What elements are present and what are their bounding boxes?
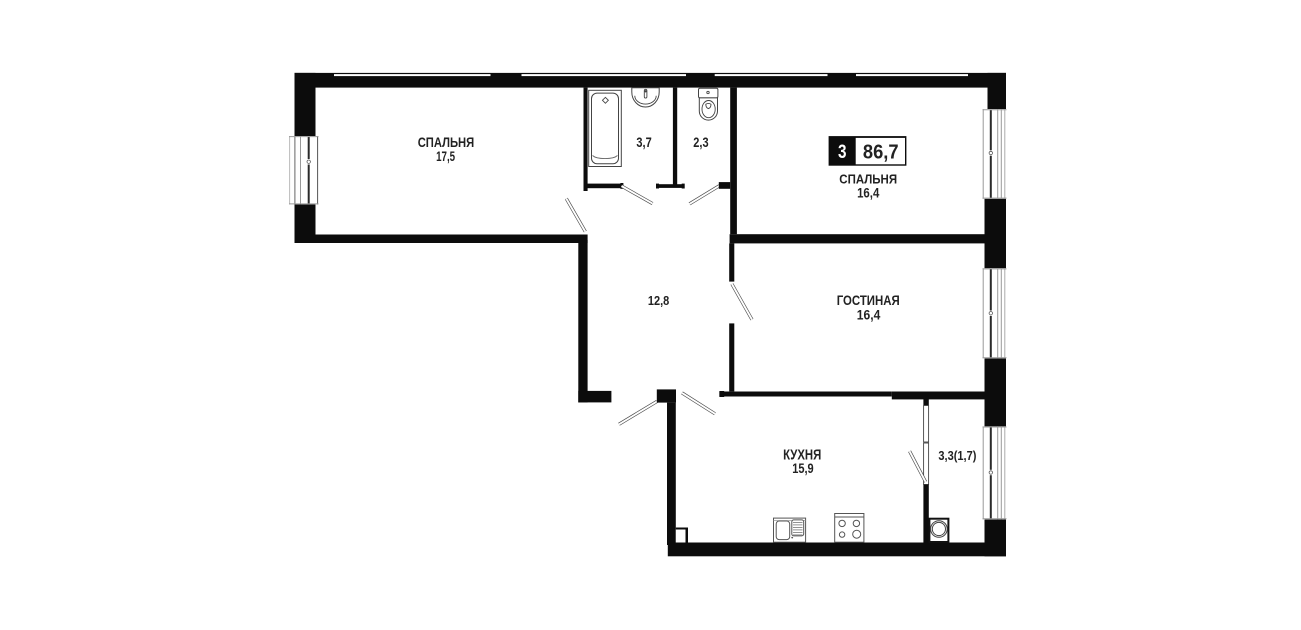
svg-text:СПАЛЬНЯ: СПАЛЬНЯ [839,173,897,187]
svg-text:3,3(1,7): 3,3(1,7) [938,449,976,463]
svg-text:3,7: 3,7 [636,134,651,150]
svg-text:16,4: 16,4 [857,186,880,201]
svg-text:ГОСТИНАЯ: ГОСТИНАЯ [837,293,900,308]
svg-text:3: 3 [838,142,847,163]
svg-text:15,9: 15,9 [792,461,814,476]
svg-text:86,7: 86,7 [863,141,899,163]
svg-text:16,4: 16,4 [857,307,881,322]
svg-text:17,5: 17,5 [436,148,455,164]
svg-text:12,8: 12,8 [648,293,669,308]
svg-text:2,3: 2,3 [693,134,708,150]
